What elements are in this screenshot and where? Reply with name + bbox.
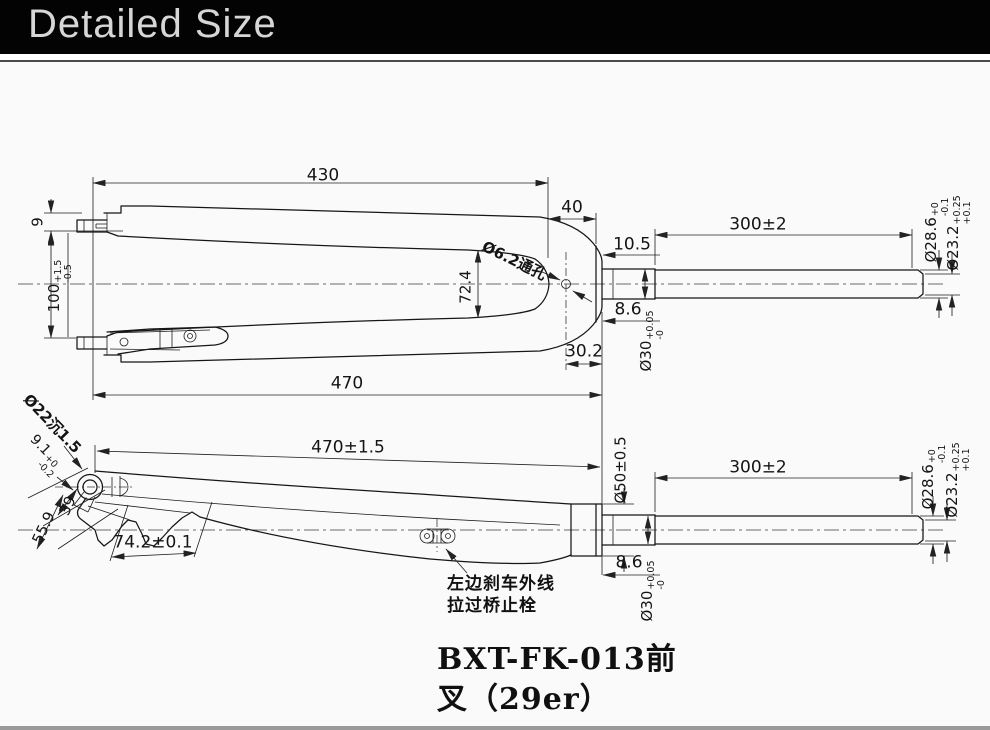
dim-430-label: 430 [307,168,339,185]
part-number-title-line1: BXT-FK-013前 [437,634,677,678]
dim-d30-side-base: Ø30 [638,591,656,622]
dim-d23-2-top-tolerance: +0.25+0.1 [953,195,972,224]
brake-note-line2: 拉过桥止栓 [447,598,537,615]
dim-9-label: 9 [31,217,46,227]
top-view-dimensions [44,177,960,575]
dim-d28-6-top-base: Ø28.6 [922,217,940,262]
top-view-drawing [18,206,944,370]
dim-300-side-label: 300±2 [729,460,787,477]
dim-d30-top-label: Ø30+0.05-0 [639,310,665,371]
part-number-title-line2: 叉（29er） [437,674,611,718]
brake-cable-stop [420,519,455,552]
dim-40-label: 40 [561,200,583,217]
top-view-upper-dropout [77,213,118,236]
brake-note-line1: 左边刹车外线 [447,576,555,593]
dim-300-top-label: 300±2 [729,217,787,234]
dim-100-tolerance: +1.5-0.5 [54,260,73,283]
dim-30-2-label: 30.2 [565,344,603,361]
footer-strip [0,726,990,730]
top-view-lower-dropout [77,327,228,355]
dim-10-5-label: 10.5 [613,237,651,254]
page: Detailed Size [0,0,990,730]
dim-d23-2-top-base: Ø23.2 [944,225,962,270]
dim-d28-6-side-base: Ø28.6 [919,464,937,509]
dim-d50-label: Ø50±0.5 [614,436,629,503]
dim-470-side-label: 470±1.5 [311,440,385,457]
fork-technical-drawing [0,0,990,730]
dim-d30-side-tolerance: +0.05-0 [647,560,666,589]
dim-d30-top-base: Ø30 [637,341,655,372]
dim-72-4-label: 72.4 [459,270,474,303]
dim-d23-2-side-tolerance: +0.25+0.1 [952,442,971,471]
dim-d23-2-side-label: Ø23.2+0.25+0.1 [945,442,971,517]
dim-8-6-side-label: 8.6 [615,555,642,572]
dim-d30-top-tolerance: +0.05-0 [646,310,665,339]
dim-74-2-label: 74.2±0.1 [113,535,192,552]
dim-d23-2-side-base: Ø23.2 [943,472,961,517]
dim-d30-side-label: Ø30+0.05-0 [640,560,666,621]
dim-470-top-label: 470 [331,376,363,393]
dim-100-label: 100+1.5-0.5 [47,260,73,313]
dim-100-base: 100 [45,284,63,313]
dim-d23-2-top-label: Ø23.2+0.25+0.1 [946,195,972,270]
dim-8-6-top-label: 8.6 [614,302,641,319]
